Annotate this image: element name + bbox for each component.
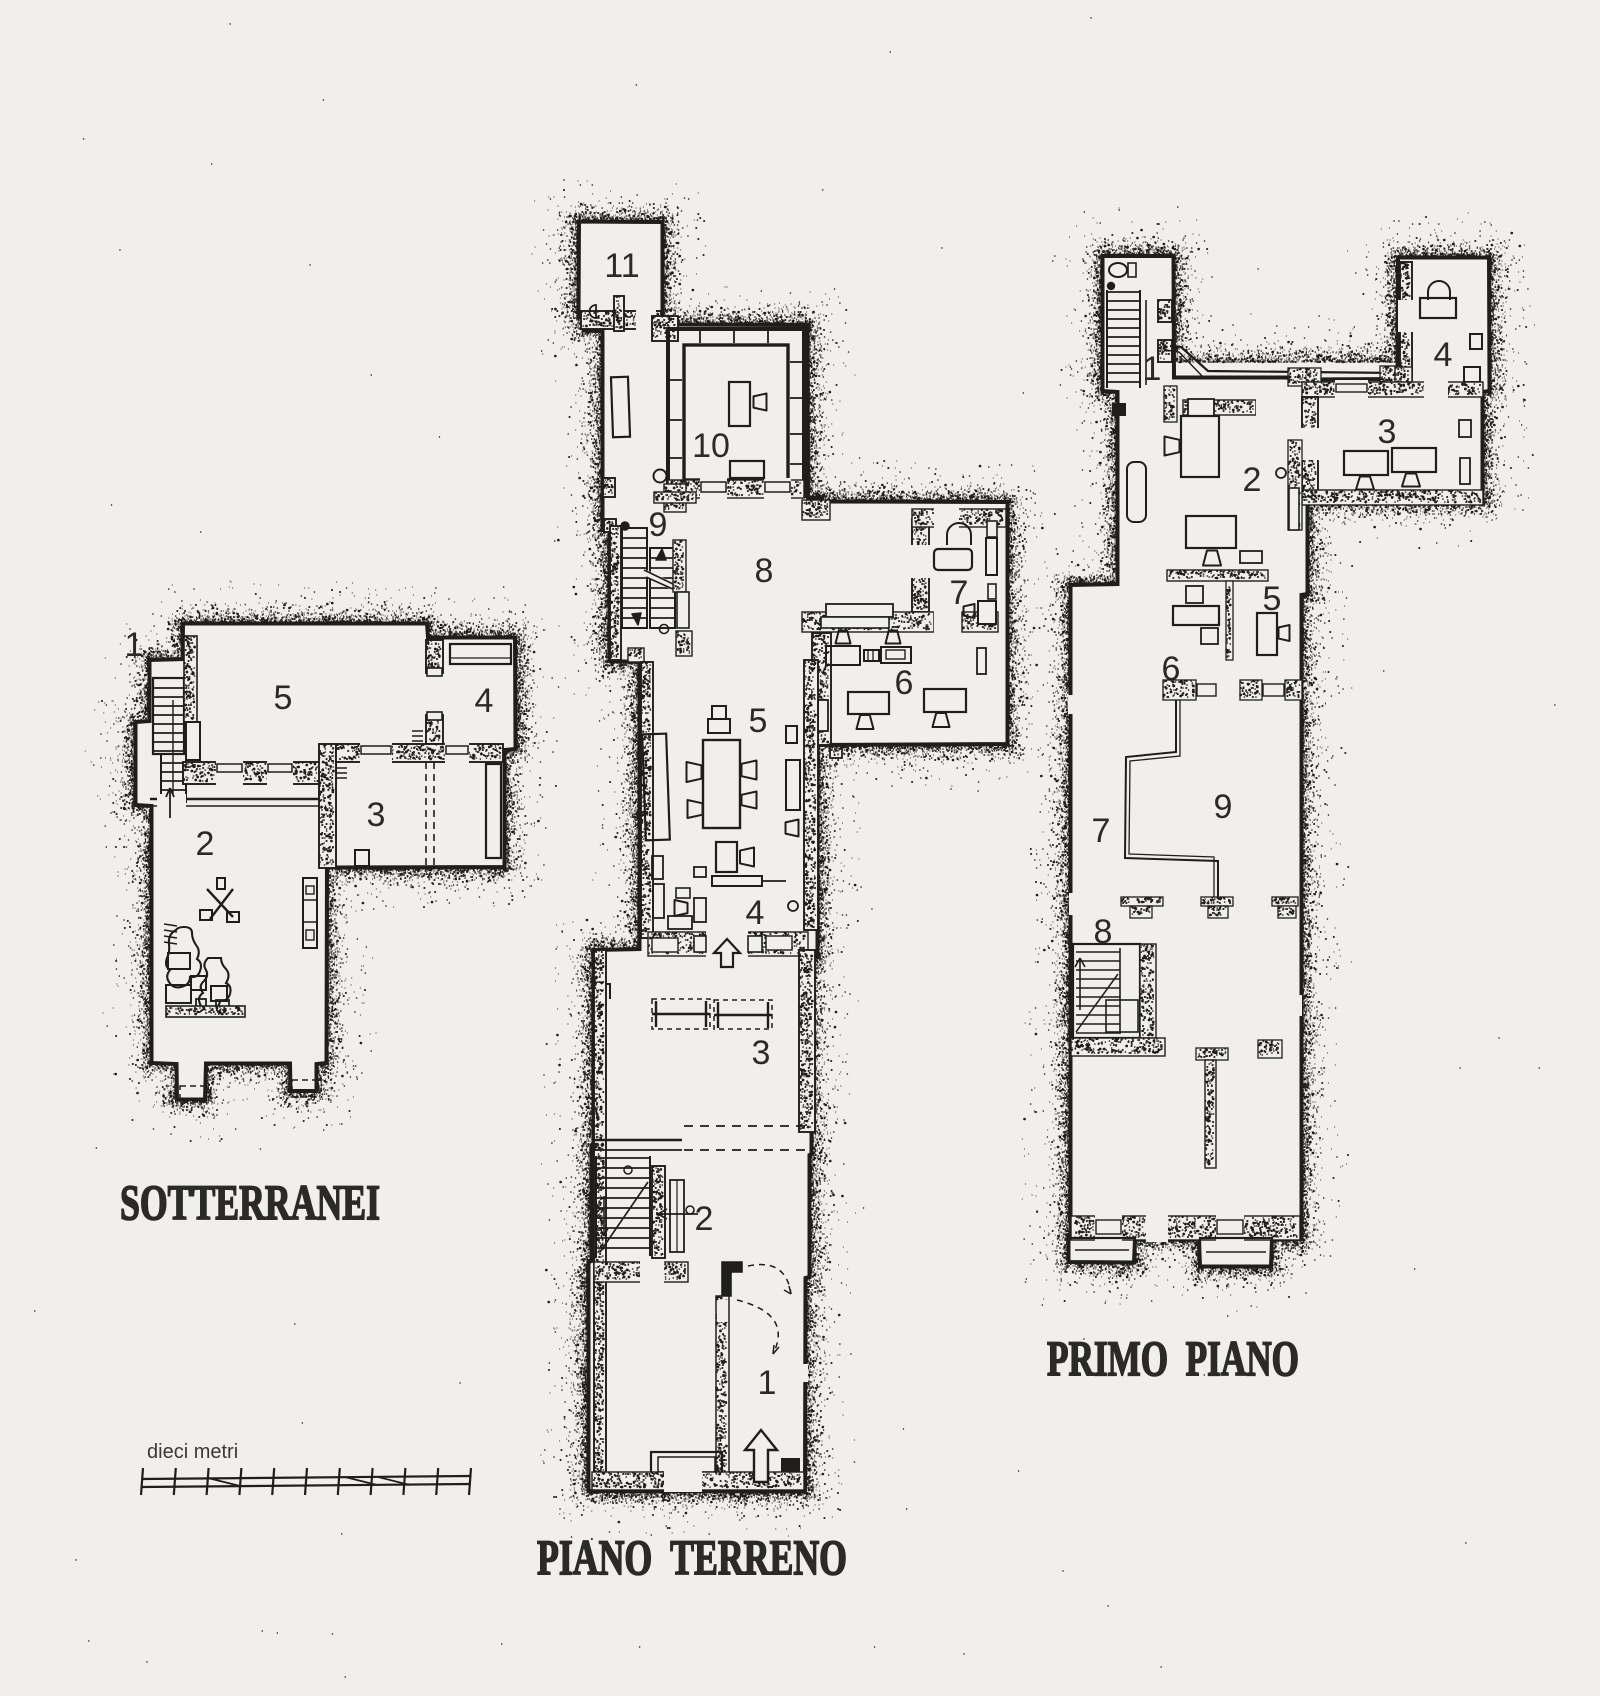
svg-text:10: 10 (692, 427, 730, 465)
svg-text:3: 3 (367, 796, 386, 834)
svg-text:PIANO TERRENO: PIANO TERRENO (537, 1529, 847, 1585)
svg-text:1: 1 (758, 1364, 777, 1402)
svg-text:1: 1 (1143, 350, 1162, 388)
svg-text:9: 9 (649, 506, 668, 544)
svg-text:PRIMO PIANO: PRIMO PIANO (1047, 1330, 1299, 1386)
svg-text:dieci metri: dieci metri (147, 1441, 238, 1463)
svg-text:11: 11 (604, 247, 639, 285)
svg-text:2: 2 (196, 825, 215, 863)
svg-text:9: 9 (1214, 788, 1233, 826)
svg-text:4: 4 (746, 894, 765, 932)
svg-text:5: 5 (749, 702, 768, 740)
svg-text:2: 2 (695, 1200, 714, 1238)
svg-text:5: 5 (1263, 580, 1282, 618)
svg-text:8: 8 (755, 552, 774, 590)
svg-text:5: 5 (274, 679, 293, 717)
svg-text:3: 3 (1378, 413, 1397, 451)
svg-text:2: 2 (1243, 461, 1262, 499)
svg-text:6: 6 (895, 664, 914, 702)
svg-text:4: 4 (475, 682, 494, 720)
svg-text:7: 7 (1092, 812, 1111, 850)
svg-text:SOTTERRANEI: SOTTERRANEI (120, 1174, 380, 1230)
svg-text:1: 1 (125, 626, 144, 664)
svg-text:8: 8 (1094, 913, 1113, 951)
svg-text:3: 3 (752, 1034, 771, 1072)
svg-text:4: 4 (1434, 336, 1453, 374)
